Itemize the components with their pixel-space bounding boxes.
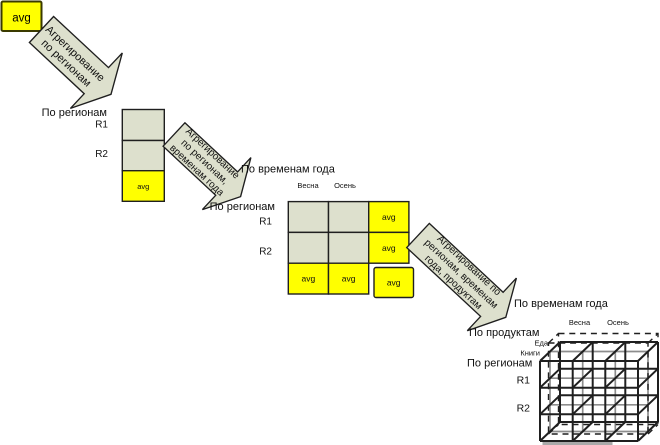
svg-text:Агрегирование порегионам, врем: Агрегирование порегионам, временамгода, … [414, 229, 508, 320]
svg-text:avg: avg [382, 243, 396, 253]
svg-text:avg: avg [387, 278, 401, 288]
svg-text:avg: avg [12, 13, 31, 25]
svg-text:Осень: Осень [334, 181, 356, 190]
svg-text:Еда: Еда [534, 339, 548, 348]
svg-text:avg: avg [137, 182, 149, 191]
svg-text:По временам года: По временам года [514, 298, 609, 310]
svg-text:R2: R2 [517, 403, 531, 415]
svg-text:avg: avg [302, 274, 316, 284]
svg-text:Весна: Весна [569, 318, 591, 327]
svg-text:R1: R1 [517, 375, 531, 387]
svg-text:R2: R2 [259, 247, 272, 258]
svg-text:По продуктам: По продуктам [469, 327, 539, 339]
svg-text:По регионам: По регионам [42, 107, 107, 119]
svg-text:По временам года: По временам года [241, 164, 336, 176]
svg-text:Осень: Осень [607, 318, 629, 327]
svg-text:avg: avg [382, 212, 396, 222]
svg-text:Весна: Весна [297, 181, 319, 190]
svg-text:По регионам: По регионам [467, 358, 532, 370]
svg-text:R1: R1 [95, 120, 108, 131]
svg-text:avg: avg [342, 274, 356, 284]
svg-text:R2: R2 [95, 149, 108, 160]
svg-text:R1: R1 [259, 217, 272, 228]
svg-text:По регионам: По регионам [210, 201, 275, 213]
svg-text:Книги: Книги [520, 349, 540, 358]
